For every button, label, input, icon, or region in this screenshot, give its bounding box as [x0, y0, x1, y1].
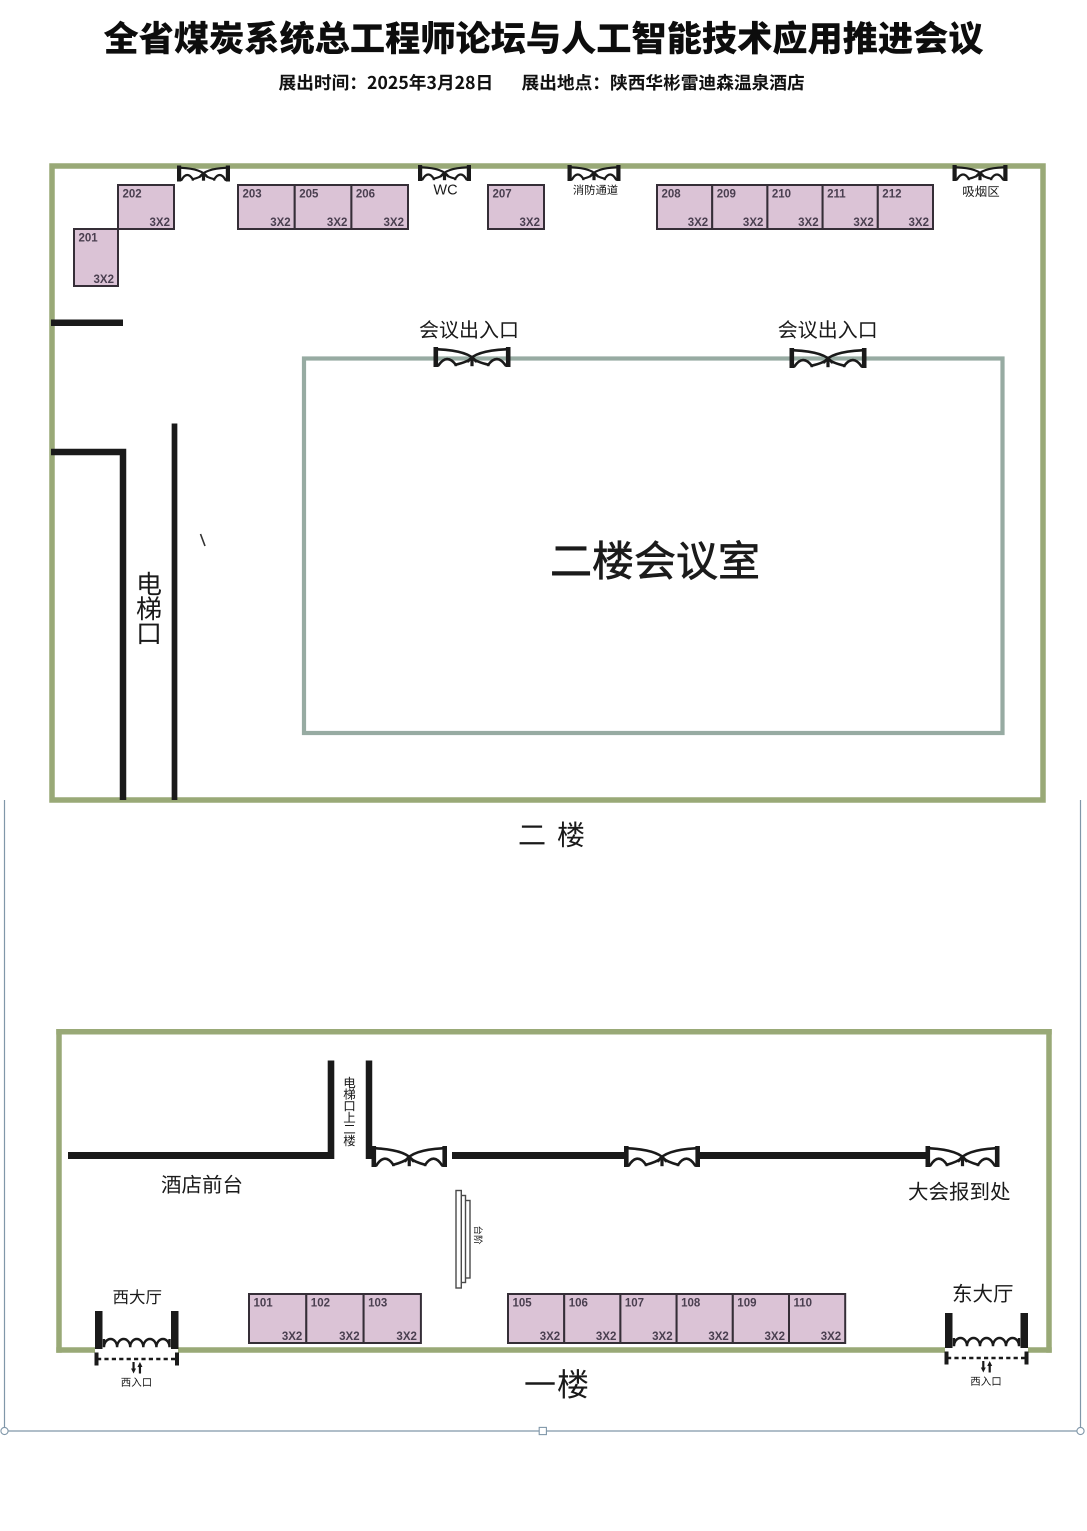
svg-text:3X2: 3X2 — [150, 217, 170, 229]
svg-text:3X2: 3X2 — [909, 217, 929, 229]
svg-text:3X2: 3X2 — [743, 217, 763, 229]
svg-text:3X2: 3X2 — [339, 1331, 359, 1343]
svg-text:3X2: 3X2 — [765, 1331, 785, 1343]
svg-text:3X2: 3X2 — [384, 217, 404, 229]
svg-text:109: 109 — [737, 1298, 756, 1310]
svg-text:3X2: 3X2 — [652, 1331, 672, 1343]
svg-text:3X2: 3X2 — [540, 1331, 560, 1343]
svg-text:207: 207 — [493, 189, 512, 201]
svg-text:3X2: 3X2 — [282, 1331, 302, 1343]
svg-text:107: 107 — [625, 1298, 644, 1310]
svg-text:105: 105 — [513, 1298, 533, 1310]
svg-text:203: 203 — [243, 189, 262, 201]
svg-text:211: 211 — [827, 189, 846, 201]
svg-text:3X2: 3X2 — [520, 217, 540, 229]
svg-text:205: 205 — [299, 189, 319, 201]
svg-text:102: 102 — [311, 1298, 330, 1310]
svg-text:3X2: 3X2 — [270, 217, 290, 229]
svg-text:3X2: 3X2 — [327, 217, 347, 229]
svg-text:3X2: 3X2 — [688, 217, 708, 229]
svg-text:3X2: 3X2 — [596, 1331, 616, 1343]
svg-text:110: 110 — [794, 1298, 813, 1310]
svg-text:3X2: 3X2 — [798, 217, 818, 229]
svg-text:106: 106 — [569, 1298, 588, 1310]
svg-text:210: 210 — [772, 189, 791, 201]
svg-text:WC: WC — [433, 183, 457, 199]
svg-text:103: 103 — [368, 1298, 387, 1310]
svg-text:201: 201 — [79, 233, 99, 245]
svg-text:3X2: 3X2 — [821, 1331, 841, 1343]
svg-text:206: 206 — [356, 189, 375, 201]
svg-text:101: 101 — [254, 1298, 274, 1310]
svg-text:209: 209 — [717, 189, 736, 201]
svg-text:3X2: 3X2 — [853, 217, 873, 229]
svg-text:208: 208 — [662, 189, 682, 201]
svg-text:3X2: 3X2 — [396, 1331, 416, 1343]
svg-text:3X2: 3X2 — [708, 1331, 728, 1343]
svg-text:3X2: 3X2 — [94, 274, 114, 286]
svg-text:212: 212 — [882, 189, 901, 201]
svg-text:202: 202 — [123, 189, 142, 201]
svg-text:108: 108 — [681, 1298, 701, 1310]
